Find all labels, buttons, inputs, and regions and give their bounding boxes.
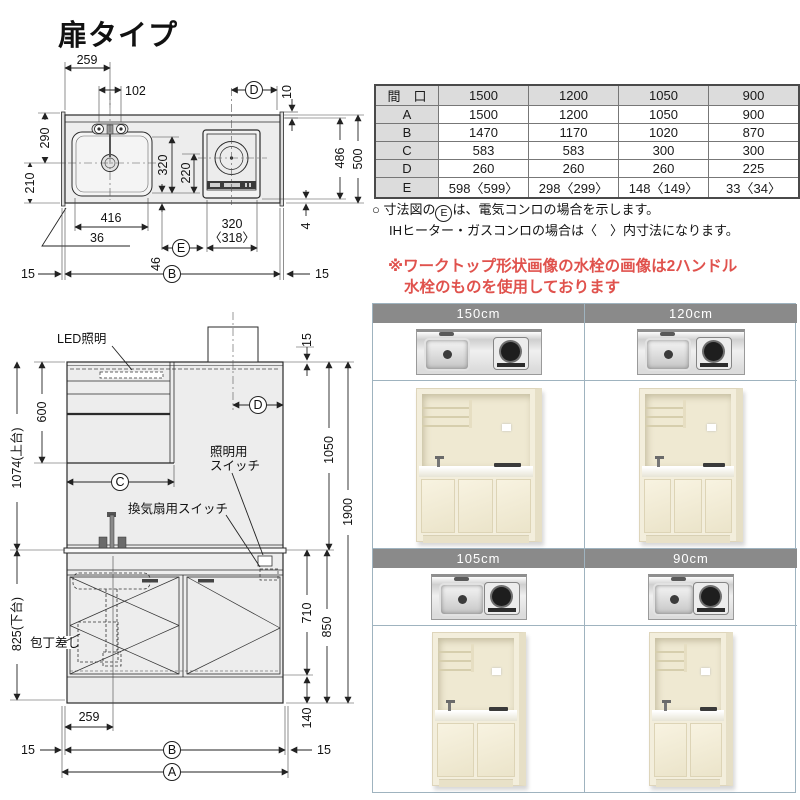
- faucet-icon: [664, 702, 667, 711]
- spec-table: 間 口 1500 1200 1050 900 A 1500 1200 1050 …: [374, 84, 800, 199]
- logo-plate: [502, 424, 511, 431]
- elev-cabinet: [67, 362, 283, 703]
- shelves: [655, 644, 687, 672]
- cabinet-illustration: [416, 388, 542, 542]
- svg-text:290: 290: [38, 128, 52, 149]
- shelves: [422, 400, 473, 428]
- svg-text:36: 36: [90, 231, 104, 245]
- table-row: C 583 583 300 300: [375, 142, 799, 160]
- faucet-icon: [660, 332, 675, 336]
- cell: 33〈34〉: [709, 178, 800, 199]
- svg-text:D: D: [249, 83, 258, 97]
- plan-dim-290: 290: [24, 113, 66, 163]
- faucet-icon: [439, 332, 454, 336]
- cell: 900: [709, 106, 800, 124]
- elev-dim-A: A: [62, 764, 288, 781]
- door: [674, 479, 701, 533]
- circled-e-symbol: E: [435, 205, 452, 222]
- worktop-photo-150cm: [373, 323, 584, 381]
- toe-kick: [646, 535, 730, 543]
- cell: 300: [619, 142, 709, 160]
- door: [690, 723, 723, 777]
- size-header: 150cm: [373, 304, 584, 323]
- row-header: D: [375, 160, 439, 178]
- logo-plate: [492, 668, 501, 675]
- svg-text:1900: 1900: [341, 498, 355, 526]
- svg-text:500: 500: [351, 149, 365, 170]
- worktop-photo-105cm: [373, 568, 584, 626]
- door: [477, 723, 515, 777]
- cell: 300: [709, 142, 800, 160]
- svg-text:15: 15: [21, 743, 35, 757]
- elev-dim-600: 600: [34, 362, 67, 463]
- faucet-icon: [657, 458, 660, 467]
- elev-dim-1074: 1074(上台): [9, 362, 65, 550]
- table-row: B 1470 1170 1020 870: [375, 124, 799, 142]
- counter: [435, 710, 517, 721]
- burner-icon: [493, 337, 529, 370]
- svg-text:259: 259: [77, 55, 98, 67]
- burner-icon: [494, 463, 521, 467]
- gallery-cell-120cm: 120cm: [585, 304, 797, 549]
- worktop-photo-120cm: [585, 323, 797, 381]
- sink-icon: [645, 338, 691, 371]
- doors: [421, 479, 531, 533]
- elev-dim-825: 825(下台): [9, 550, 65, 700]
- door: [458, 479, 493, 533]
- cell: 870: [709, 124, 800, 142]
- shelves: [438, 644, 474, 672]
- cabinet-photo-150cm: [373, 381, 584, 548]
- svg-text:825(下台): 825(下台): [9, 597, 24, 651]
- plan-dim-4: 4: [299, 190, 313, 229]
- cabinet-photo-105cm: [373, 626, 584, 792]
- plan-sink: [72, 132, 152, 196]
- toe-kick: [656, 779, 720, 787]
- cabinet-illustration: [639, 388, 743, 542]
- row-header: B: [375, 124, 439, 142]
- table-row: D 260 260 260 225: [375, 160, 799, 178]
- svg-text:LED照明: LED照明: [57, 332, 106, 346]
- svg-text:15: 15: [315, 267, 329, 281]
- svg-text:換気扇用スイッチ: 換気扇用スイッチ: [128, 501, 228, 516]
- worktop-illustration: [416, 329, 542, 375]
- faucet-icon: [454, 577, 469, 581]
- cell: 225: [709, 160, 800, 178]
- doors: [654, 723, 722, 777]
- logo-plate: [701, 668, 710, 675]
- col-header: 間 口: [375, 85, 439, 106]
- warning-line-2: 水栓のものを使用しております: [388, 277, 737, 298]
- size-header: 90cm: [585, 549, 797, 568]
- cell: 298〈299〉: [529, 178, 619, 199]
- svg-text:10: 10: [280, 85, 294, 99]
- cell: 1170: [529, 124, 619, 142]
- svg-text:15: 15: [21, 267, 35, 281]
- counter: [642, 466, 734, 477]
- elev-dim-1050: 1050: [322, 362, 336, 550]
- note-line-2: IHヒーター・ガスコンロの場合は〈 〉内寸法になります。: [372, 222, 739, 240]
- row-header: A: [375, 106, 439, 124]
- svg-text:102: 102: [125, 84, 146, 98]
- elev-dim-850: 850: [320, 550, 334, 703]
- table-header-row: 間 口 1500 1200 1050 900: [375, 85, 799, 106]
- col-header: 1200: [529, 85, 619, 106]
- door: [705, 479, 732, 533]
- worktop-illustration: [637, 329, 745, 375]
- plan-dim-D: D: [232, 82, 278, 111]
- cell: 260: [529, 160, 619, 178]
- worktop-photo-90cm: [585, 568, 797, 626]
- burner-icon: [703, 463, 725, 467]
- page-title: 扉タイプ: [58, 12, 178, 54]
- faucet-icon: [448, 702, 451, 711]
- notes: ○ 寸法図のEは、電気コンロの場合を示します。 IHヒーター・ガスコンロの場合は…: [372, 201, 739, 240]
- cabinet-illustration: [432, 632, 526, 786]
- svg-text:スイッチ: スイッチ: [210, 459, 260, 473]
- svg-text:320: 320: [222, 217, 243, 231]
- cell: 148〈149〉: [619, 178, 709, 199]
- elevation-view-drawing: LED照明 照明用 スイッチ 換気扇用スイッチ: [0, 300, 375, 800]
- door: [496, 479, 531, 533]
- faucet-icon: [437, 458, 440, 467]
- gallery-cell-105cm: 105cm: [373, 549, 585, 792]
- plan-dim-500: 500: [286, 115, 365, 203]
- cell: 1200: [529, 106, 619, 124]
- burner-icon: [693, 582, 729, 615]
- sink-icon: [653, 583, 695, 616]
- note-text: ○ 寸法図の: [372, 202, 435, 217]
- svg-text:D: D: [253, 398, 262, 412]
- size-header: 120cm: [585, 304, 797, 323]
- svg-text:320: 320: [156, 155, 170, 176]
- elev-dim-15top: 15: [283, 333, 354, 376]
- row-header: C: [375, 142, 439, 160]
- gallery-cell-150cm: 150cm: [373, 304, 585, 549]
- door: [437, 723, 475, 777]
- svg-text:15: 15: [317, 743, 331, 757]
- svg-text:C: C: [115, 475, 124, 489]
- faucet-icon: [671, 577, 686, 581]
- svg-text:210: 210: [23, 173, 37, 194]
- door: [644, 479, 671, 533]
- svg-text:416: 416: [101, 211, 122, 225]
- toe-kick: [439, 779, 513, 787]
- table-row: E 598〈599〉 298〈299〉 148〈149〉 33〈34〉: [375, 178, 799, 199]
- svg-text:850: 850: [320, 617, 334, 638]
- product-gallery: 150cm 120cm: [372, 303, 796, 793]
- plan-dim-320b: 320 〈318〉: [207, 200, 257, 252]
- svg-text:B: B: [168, 267, 176, 281]
- door: [421, 479, 456, 533]
- burner-icon: [489, 707, 509, 711]
- worktop-illustration: [648, 574, 734, 620]
- svg-text:1050: 1050: [322, 436, 336, 464]
- note-text: は、電気コンロの場合を示します。: [452, 202, 659, 217]
- row-header: E: [375, 178, 439, 199]
- shelves: [645, 400, 686, 428]
- doors: [644, 479, 732, 533]
- plan-dim-259: 259: [65, 55, 110, 110]
- page: 扉タイプ: [0, 0, 800, 800]
- svg-text:照明用: 照明用: [210, 445, 248, 459]
- cell: 1050: [619, 106, 709, 124]
- cell: 260: [439, 160, 529, 178]
- counter: [652, 710, 724, 721]
- worktop-illustration: [431, 574, 527, 620]
- svg-text:259: 259: [79, 710, 100, 724]
- door: [654, 723, 687, 777]
- gallery-cell-90cm: 90cm: [585, 549, 797, 792]
- sink-icon: [439, 583, 485, 616]
- note-line-1: ○ 寸法図のEは、電気コンロの場合を示します。: [372, 201, 739, 222]
- svg-text:15: 15: [300, 333, 314, 347]
- plan-view-drawing: 259 102 D 10 290: [0, 55, 375, 300]
- cell: 260: [619, 160, 709, 178]
- toe-kick: [423, 535, 529, 543]
- svg-text:46: 46: [149, 257, 163, 271]
- burner-icon: [696, 337, 732, 370]
- table-row: A 1500 1200 1050 900: [375, 106, 799, 124]
- cell: 1020: [619, 124, 709, 142]
- cabinet-photo-120cm: [585, 381, 797, 548]
- col-header: 1050: [619, 85, 709, 106]
- svg-text:1074(上台): 1074(上台): [9, 427, 24, 488]
- warning-line-1: ※ワークトップ形状画像の水栓の画像は2ハンドル: [388, 256, 737, 277]
- cell: 583: [439, 142, 529, 160]
- counter: [419, 466, 533, 477]
- cabinet-illustration: [649, 632, 733, 786]
- doors: [437, 723, 515, 777]
- cell: 583: [529, 142, 619, 160]
- plan-dim-E: E: [162, 240, 203, 257]
- svg-text:710: 710: [300, 603, 314, 624]
- burner-icon: [700, 707, 717, 711]
- burner-icon: [484, 582, 520, 615]
- col-header: 1500: [439, 85, 529, 106]
- elev-dim-1900: 1900: [286, 362, 355, 703]
- sink-icon: [424, 338, 470, 371]
- svg-text:B: B: [168, 743, 176, 757]
- svg-text:A: A: [168, 765, 177, 779]
- col-header: 900: [709, 85, 800, 106]
- cell: 1500: [439, 106, 529, 124]
- svg-text:4: 4: [299, 222, 313, 229]
- svg-text:600: 600: [35, 402, 49, 423]
- svg-text:220: 220: [179, 163, 193, 184]
- svg-text:E: E: [177, 241, 185, 255]
- logo-plate: [707, 424, 716, 431]
- svg-text:〈318〉: 〈318〉: [209, 231, 255, 245]
- plan-dim-210: 210: [23, 163, 60, 203]
- svg-text:486: 486: [333, 148, 347, 169]
- size-header: 105cm: [373, 549, 584, 568]
- warning-note: ※ワークトップ形状画像の水栓の画像は2ハンドル 水栓のものを使用しております: [388, 256, 737, 298]
- svg-text:140: 140: [300, 708, 314, 729]
- cell: 598〈599〉: [439, 178, 529, 199]
- cabinet-photo-90cm: [585, 626, 797, 792]
- cell: 1470: [439, 124, 529, 142]
